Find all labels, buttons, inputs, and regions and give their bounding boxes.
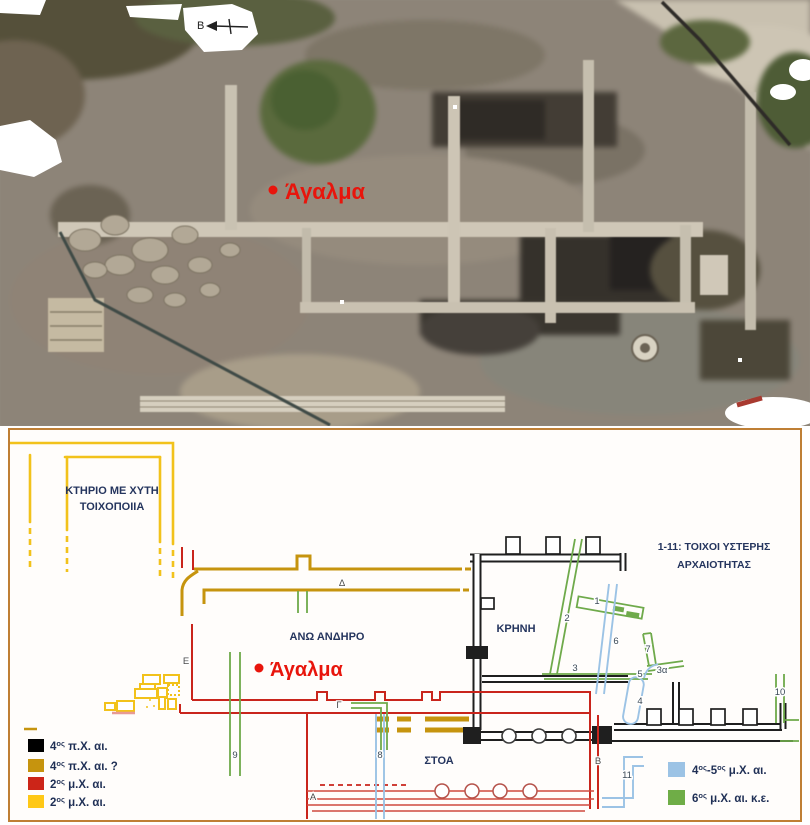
site-plan: ΚΤΗΡΙΟ ΜΕ ΧΥΤΗ ΤΟΙΧΟΠΟΙΙΑ 1-11: ΤΟΙΧΟΙ Υ… [10,430,799,819]
legend-label-black: 4ος π.Χ. αι. [50,739,108,753]
wall-number-8: 8 [377,750,382,761]
terrain [0,0,810,426]
legend-right: 4ος-5ος μ.Χ. αι. 6ος μ.Χ. αι. κ.ε. [668,762,769,805]
wall-number-1: 1 [594,596,599,607]
north-label: Β [197,20,204,32]
wall-number-3: 3 [572,663,577,674]
note-line2: ΑΡΧΑΙΟΤΗΤΑΣ [677,559,751,571]
walls-ochre [182,556,471,730]
fountain-label: ΚΡΗΝΗ [496,623,535,635]
wall-number-11: 11 [622,770,632,781]
legend-swatch-yellow [28,795,44,808]
wall-number-10: 10 [775,687,786,698]
aerial-photo: Β Άγαλμα [0,0,810,426]
site-plan-panel: ΚΤΗΡΙΟ ΜΕ ΧΥΤΗ ΤΟΙΧΟΠΟΙΙΑ 1-11: ΤΟΙΧΟΙ Υ… [8,428,802,822]
legend-swatch-ochre [28,759,44,772]
letter-delta: Δ [339,578,346,589]
legend-label-blue: 4ος-5ος μ.Χ. αι. [692,763,767,777]
upper-terrace-label: ΑΝΩ ΑΝΔΗΡΟ [290,631,365,643]
legend-swatch-blue [668,762,685,777]
legend-label-green: 6ος μ.Χ. αι. κ.ε. [692,791,769,805]
walls-blue [376,584,658,819]
walls-yellow-blocks [24,675,179,729]
photo-statue-label: Άγαλμα [285,179,366,204]
wall-number-5: 5 [637,669,642,680]
wall-number-7: 7 [645,644,650,655]
legend-swatch-black [28,739,44,752]
legend-swatch-green [668,790,685,805]
letter-gamma: Γ [336,700,341,711]
plan-statue-label: Άγαλμα [270,659,343,681]
wall-number-9: 9 [232,750,237,761]
wall-number-2: 2 [564,613,569,624]
wall-number-6: 6 [613,636,618,647]
wall-number-3a: 3α [657,665,668,676]
legend-label-yellow: 2ος μ.Χ. αι. [50,795,106,809]
letter-epsilon: Ε [183,656,189,667]
building-label-line1: ΚΤΗΡΙΟ ΜΕ ΧΥΤΗ [65,485,159,497]
stoa-label: ΣΤΟΑ [424,755,453,767]
legend-label-red: 2ος μ.Χ. αι. [50,777,106,791]
letter-beta: Β [595,756,601,767]
note-line1: 1-11: ΤΟΙΧΟΙ ΥΣΤΕΡΗΣ [658,541,771,553]
walls-red-ticks [182,547,193,570]
legend-label-ochre: 4ος π.Χ. αι. ? [50,759,118,773]
building-label-line2: ΤΟΙΧΟΠΟΙΙΑ [80,501,145,513]
legend-swatch-red [28,777,44,790]
letter-alpha: Α [310,792,317,803]
legend-left: 4ος π.Χ. αι. 4ος π.Χ. αι. ? 2ος μ.Χ. αι.… [28,739,118,809]
wall-number-4: 4 [637,696,642,707]
plan-statue-marker: Άγαλμα [255,659,344,681]
